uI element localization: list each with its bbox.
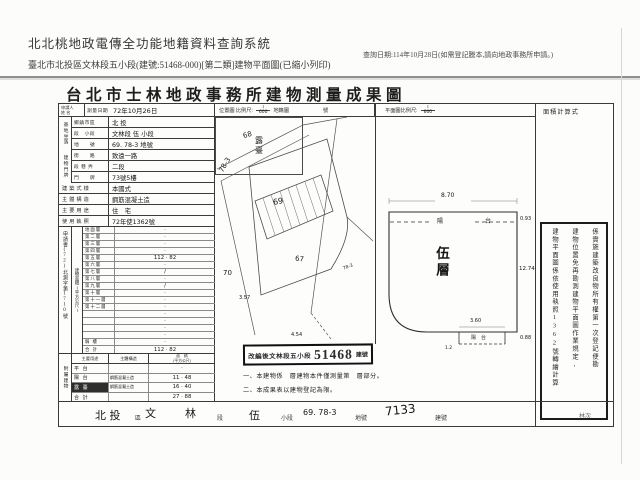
floor-row: · — [83, 332, 215, 339]
floor-row: 第三層 · — [83, 241, 215, 248]
location-scale-fraction: 1 600 — [256, 105, 271, 116]
parcel-label-67: 67 — [295, 255, 305, 264]
note-2: 二、本成果表以建物登記為限。 — [243, 385, 337, 394]
floor-row: 第四層 · — [83, 248, 215, 255]
table-row: 建築式樣 本國式 — [59, 183, 215, 194]
plan-dim-bottom-right: 0.88 — [520, 335, 531, 341]
note-1: 一、本建物係 層建物本件僅測量第 層部分。 — [243, 371, 383, 380]
annex-rows: 平 台 · 陽 台 鋼筋混凝土造 11 · 48 露 臺 — [72, 364, 215, 402]
building-number-51468: 51468 — [314, 346, 353, 362]
floor-area-spine-label: 建物面積(平方公尺) — [72, 227, 83, 353]
annex-row: 平 台 · — [72, 364, 215, 374]
table-row: 鄉鎮市區 北 投 — [72, 117, 215, 128]
area-calc-label: 面積計算式 — [543, 107, 579, 116]
survey-date-value: 72年10月26日 — [113, 104, 215, 116]
renumber-stamp: 改編後文林段五小段 51468 建號 — [243, 343, 373, 365]
plan-dim-top-right: 0.93 — [520, 216, 531, 222]
annex-row: 露 臺 鋼筋混凝土造 16 · 40 — [72, 383, 215, 393]
survey-date-label: 測量日期 — [85, 104, 113, 116]
table-row: 段 小段 文林段 伍 小段 — [72, 128, 215, 139]
floor-row: 第十一層 · — [83, 297, 215, 304]
location-map-drawing — [215, 117, 375, 344]
room-label-fifth-floor: 伍層 — [431, 246, 451, 279]
sketch-dim-left: 3.57 — [239, 295, 250, 301]
table-row: 門 牌 73號5樓 — [72, 172, 215, 183]
table-row: 段 巷 弄 二段 — [72, 161, 215, 172]
recap-section: 文 — [145, 405, 156, 421]
floor-row: · — [83, 311, 215, 318]
table-row: 地 號 69. 78-3 地號 — [72, 139, 215, 150]
floor-row: 第七層 / — [83, 269, 215, 276]
recap-district: 北 投 — [95, 407, 121, 423]
survey-chart-title: 台北市士林地政事務所建物測量成果圖 — [66, 83, 406, 105]
floor-area-block: 申請書(72)北測字第1710號 建物面積(平方公尺) 地面層 · 第二層 · — [59, 227, 215, 353]
sketch-dim-bottom: 4.54 — [291, 332, 302, 338]
plan-dim-balcony-width: 3.60 — [470, 318, 481, 324]
floor-row: 第六層 · — [83, 262, 215, 269]
table-row: 主體構造 鋼筋混凝土造 — [59, 194, 215, 205]
form-header-row: 申請人 姓 名 測量日期 72年10月26日 位置圖 比例尺: 1 600 地籍… — [59, 104, 535, 117]
recap-lots: 69. 78-3 — [303, 408, 336, 417]
site-group-label: 基地坐落 — [59, 117, 72, 150]
address-rows: 街 路 致遠一路 段 巷 弄 二段 門 牌 73號5樓 — [72, 150, 215, 183]
annex-block: 附屬建物 主要用途 主體構造 面 積 (平方公尺) 平 台 — [59, 353, 215, 401]
balcony-top-label: 陽 台 — [437, 216, 509, 225]
plan-dim-top: 8.70 — [441, 192, 454, 199]
floor-row: · — [83, 318, 215, 325]
sidebar-divider — [535, 104, 536, 426]
floor-row: 騎 樓 · — [83, 339, 215, 346]
plan-scale-fraction: 1 600 — [421, 105, 436, 116]
plan-dim-right: 12.74 — [519, 266, 535, 272]
plan-dim-balcony-offset: 1.2 — [445, 346, 452, 351]
applicant-cell: 申請人 姓 名 — [59, 104, 85, 116]
floor-plan: 8.70 0.93 12.74 0.88 3.60 1.2 陽 台 陽台 伍層 — [375, 190, 535, 360]
floor-row: 第十二層 · — [83, 304, 215, 311]
floor-row: 第十層 · — [83, 290, 215, 297]
site-block: 基地坐落 鄉鎮市區 北 投 段 小段 文林段 伍 小段 地 號 — [59, 117, 215, 150]
header-divider — [0, 76, 640, 78]
parcel-label-70: 70 — [223, 269, 232, 277]
address-group-label: 建物門牌 — [59, 150, 72, 183]
recap-subsection: 伍 — [249, 407, 260, 423]
plan-scale-header: 平面圖比例尺: 1 600 — [375, 104, 535, 116]
floor-row: 地面層 · — [83, 227, 215, 234]
site-rows: 鄉鎮市區 北 投 段 小段 文林段 伍 小段 地 號 69. 78-3 地號 — [72, 117, 215, 150]
query-date: 查詢日期:114年10月28日(如需登記謄本,請向地政事務所申請。) — [363, 50, 553, 60]
document-subtitle: 臺北市北投區文林段五小段(建號:51468-000)[第二類]建物平面圖(已縮小… — [28, 58, 330, 71]
floor-row: 第五層 112 · 82 — [83, 255, 215, 262]
floor-row: 第二層 · — [83, 234, 215, 241]
floor-row: · — [83, 325, 215, 332]
annex-row: 陽 台 鋼筋混凝土造 11 · 48 — [72, 374, 215, 384]
recap-building-no: 7133 — [384, 401, 416, 418]
floor-row: 第九層 / — [83, 283, 215, 290]
table-row: 主要用途 住 宅 — [59, 205, 215, 216]
annex-header-row: 主要用途 主體構造 面 積 (平方公尺) — [72, 354, 215, 364]
side-note-stamp: 係實施建築改良物所有權第一次登記便勘 建物位置免再勘測建物平面圖作業規定, 建物… — [540, 222, 608, 420]
floor-row: 合 計 112 · 82 — [83, 346, 215, 353]
location-map-header: 位置圖 比例尺: 1 600 地籍圖 號 — [215, 104, 375, 116]
system-title: 北北桃地政電傳全功能地籍資料查詢系統 — [28, 33, 271, 52]
application-number: 申請書(72)北測字第1710號 — [59, 227, 72, 353]
attribute-table: 基地坐落 鄉鎮市區 北 投 段 小段 文林段 伍 小段 地 號 — [59, 117, 215, 401]
location-map: 68 78-3 69 70 67 露臺 3.57 4.54 78-3 — [215, 117, 375, 344]
annex-group-label: 附屬建物 — [59, 354, 72, 401]
screen: { "colors": {"paper": "#fcfcfa", "ink": … — [0, 0, 640, 480]
floor-row: 第八層 · — [83, 276, 215, 283]
table-row: 街 路 致遠一路 — [72, 150, 215, 161]
attributes-block: 建築式樣 本國式 主體構造 鋼筋混凝土造 主要用途 住 宅 使用執照 72年使1… — [59, 183, 215, 227]
floor-rows: 地面層 · 第二層 · 第三層 · 第四層 · — [83, 227, 215, 353]
balcony-bottom-label: 陽台 — [471, 334, 491, 341]
annex-table: 主要用途 主體構造 面 積 (平方公尺) 平 台 · — [72, 354, 215, 401]
survey-form: 申請人 姓 名 測量日期 72年10月26日 位置圖 比例尺: 1 600 地籍… — [58, 103, 614, 427]
scan-paper-edge — [621, 28, 622, 464]
table-row: 使用執照 72年使1362號 — [59, 216, 215, 227]
recap-check-mark: 林次 — [579, 411, 591, 420]
address-block: 建物門牌 街 路 致遠一路 段 巷 弄 二段 門 牌 73號 — [59, 150, 215, 183]
location-recap-row: 北 投 區 文 林 段 伍 小段 69. 78-3 地號 7133 建號 林次 — [59, 401, 613, 426]
